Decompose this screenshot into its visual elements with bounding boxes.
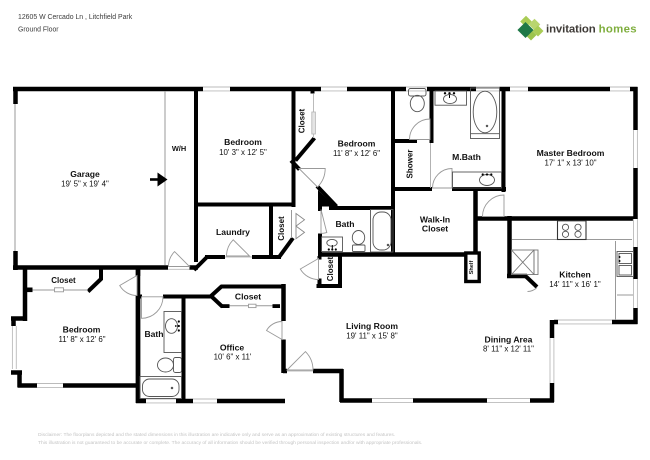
svg-text:Bedroom: Bedroom — [224, 137, 262, 147]
svg-text:10' 6" x 11': 10' 6" x 11' — [214, 353, 252, 362]
svg-text:Kitchen: Kitchen — [559, 270, 591, 280]
svg-text:Shelf: Shelf — [469, 261, 475, 275]
svg-text:Garage: Garage — [70, 169, 100, 179]
svg-text:19' 11" x 15' 8": 19' 11" x 15' 8" — [346, 331, 398, 340]
svg-text:Bedroom: Bedroom — [338, 139, 376, 149]
svg-text:10' 3" x 12' 5": 10' 3" x 12' 5" — [219, 148, 267, 157]
svg-text:Closet: Closet — [298, 108, 307, 133]
svg-text:11' 8" x 12' 6": 11' 8" x 12' 6" — [58, 335, 105, 344]
svg-text:19' 5" x 19' 4": 19' 5" x 19' 4" — [61, 180, 109, 189]
svg-text:Closet: Closet — [326, 256, 335, 281]
svg-text:Closet: Closet — [277, 216, 286, 241]
svg-text:Shower: Shower — [406, 150, 415, 179]
svg-text:This illustration is not guara: This illustration is not guaranteed to b… — [38, 440, 422, 446]
svg-text:Bath: Bath — [335, 219, 354, 229]
svg-text:invitationhomes: invitationhomes — [546, 24, 637, 36]
svg-text:17' 1" x 13' 10": 17' 1" x 13' 10" — [544, 158, 596, 167]
svg-text:Living Room: Living Room — [346, 321, 398, 331]
svg-text:12605 W Cercado Ln , Litchfiel: 12605 W Cercado Ln , Litchfield Park — [18, 14, 133, 21]
svg-text:Dining Area: Dining Area — [485, 334, 533, 344]
svg-text:W/H: W/H — [172, 144, 186, 153]
svg-text:Bedroom: Bedroom — [63, 325, 101, 335]
svg-text:Closet: Closet — [422, 224, 448, 234]
svg-text:Master Bedroom: Master Bedroom — [537, 148, 605, 158]
svg-text:M.Bath: M.Bath — [452, 152, 481, 162]
svg-text:Disclaimer: The floorplans dep: Disclaimer: The floorplans depicted and … — [38, 432, 395, 438]
svg-text:Ground Floor: Ground Floor — [18, 27, 59, 34]
svg-text:Closet: Closet — [51, 276, 76, 285]
svg-text:11' 8" x 12' 6": 11' 8" x 12' 6" — [333, 149, 380, 158]
svg-text:Closet: Closet — [235, 292, 261, 302]
svg-text:Laundry: Laundry — [216, 227, 250, 237]
svg-text:14' 11" x 16' 1": 14' 11" x 16' 1" — [549, 280, 601, 289]
svg-text:Office: Office — [220, 343, 245, 353]
svg-text:Bath: Bath — [144, 329, 163, 339]
svg-text:8' 11" x 12' 11": 8' 11" x 12' 11" — [483, 345, 534, 354]
